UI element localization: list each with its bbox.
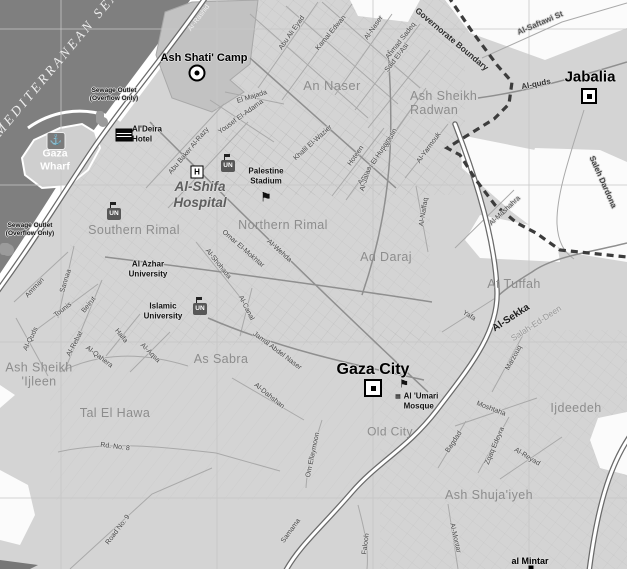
poi-label-gaza-wharf: Gaza Wharf <box>40 147 70 172</box>
town-marker-icon-jabalia <box>581 88 597 104</box>
hotel-icon <box>116 129 133 142</box>
poi-label-palestine-stadium: Palestine Stadium <box>248 166 283 185</box>
poi-label-al-shifa-hospital: Al-Shifa Hospital <box>173 179 226 211</box>
poi-label-sewage-outlet-south: Sewage Outlet (Overflow Only) <box>6 222 54 238</box>
place-label-ash-shati-camp: Ash Shati' Camp <box>161 52 248 64</box>
un-icon-islamic-university: UN <box>193 303 207 315</box>
district-label-as-sabra: As Sabra <box>194 353 249 367</box>
poi-label-al-azhar-university: Al Azhar University <box>129 259 168 278</box>
flag-icon-stadium: ⚑ <box>260 191 272 204</box>
district-label-northern-rimal: Northern Rimal <box>238 219 328 233</box>
district-label-an-naser: An Naser <box>303 79 360 93</box>
district-label-ad-daraj: Ad Daraj <box>360 251 412 265</box>
town-marker-icon-al-mintar <box>529 566 534 569</box>
district-label-old-city: Old City <box>367 425 413 438</box>
hospital-icon: H <box>191 166 204 179</box>
district-label-tal-el-hawa: Tal El Hawa <box>80 407 150 421</box>
district-label-ash-sheikh-radwan: Ash Sheikh Radwan <box>410 90 477 118</box>
place-label-jabalia: Jabalia <box>565 69 616 86</box>
town-marker-icon-gaza-city <box>364 379 382 397</box>
place-label-al-mintar: al Mintar <box>511 556 548 566</box>
poi-label-al-umari-mosque: Al 'Umari Mosque <box>404 391 439 410</box>
un-icon-southern-rimal: UN <box>107 208 121 220</box>
district-label-ijdeedeh: Ijdeedeh <box>550 402 601 416</box>
camp-marker-icon <box>189 65 206 82</box>
place-label-gaza-city: Gaza City <box>337 361 410 379</box>
district-label-ash-sheikh-ijleen: Ash Sheikh 'Ijleen <box>5 361 72 389</box>
poi-label-al-deira-hotel: Al'Deira Hotel <box>132 124 162 143</box>
district-label-ash-shujaiyeh: Ash Shuja'iyeh <box>445 489 533 503</box>
district-label-at-tuffah: At Tuffah <box>487 278 540 292</box>
district-label-southern-rimal: Southern Rimal <box>88 224 180 238</box>
mosque-icon: ▦ <box>395 394 401 400</box>
map-canvas[interactable]: MEDITERRANEAN SEA An Naser Ash Sheikh Ra… <box>0 0 627 569</box>
poi-label-sewage-outlet-north: Sewage Outlet (Overflow Only) <box>90 87 138 103</box>
flag-icon-mosque: ⚑ <box>399 380 409 391</box>
anchor-icon: ⚓ <box>47 132 66 150</box>
un-icon-shifa: UN <box>221 160 235 172</box>
poi-label-islamic-university: Islamic University <box>144 301 183 320</box>
